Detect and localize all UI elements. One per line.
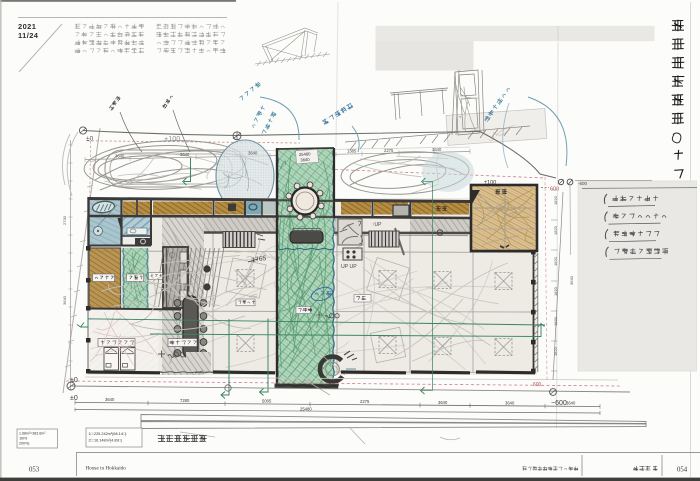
svg-text:7280: 7280 <box>180 398 190 403</box>
svg-text:1.68m²=383.6m²: 1.68m²=383.6m² <box>19 432 46 436</box>
svg-text:1385: 1385 <box>347 149 357 154</box>
svg-text:200%): 200%) <box>19 442 29 446</box>
svg-text:+100: +100 <box>164 134 180 143</box>
svg-text:UP UP: UP UP <box>341 264 357 270</box>
svg-text:25480: 25480 <box>300 407 312 412</box>
svg-text:1820: 1820 <box>553 256 558 266</box>
svg-text:3640: 3640 <box>569 275 574 285</box>
svg-text:2730: 2730 <box>62 215 67 225</box>
svg-text:1820: 1820 <box>553 286 558 296</box>
svg-text:3640: 3640 <box>105 397 115 402</box>
svg-text:5005: 5005 <box>262 398 272 403</box>
svg-text:↑UP: ↑UP <box>372 222 382 228</box>
svg-text:1820: 1820 <box>553 195 558 205</box>
svg-text:-600: -600 <box>578 181 588 186</box>
svg-text:3640: 3640 <box>300 157 310 163</box>
svg-text:1□:225.242m²(68.14□): 1□:225.242m²(68.14□) <box>89 432 128 436</box>
svg-text:3640: 3640 <box>505 400 515 405</box>
svg-text:3640: 3640 <box>432 147 442 152</box>
svg-text:±100: ±100 <box>484 180 496 186</box>
svg-text:053: 053 <box>29 467 40 474</box>
svg-text:2275: 2275 <box>360 399 370 404</box>
svg-text:3640: 3640 <box>566 401 576 406</box>
svg-text:054: 054 <box>677 467 688 474</box>
svg-text:1820: 1820 <box>553 225 558 235</box>
svg-text:House in Hokkaido: House in Hokkaido <box>86 466 127 472</box>
svg-text:2275: 2275 <box>384 148 394 153</box>
svg-text:±0: ±0 <box>70 395 78 402</box>
svg-text:±0: ±0 <box>70 377 78 384</box>
svg-text:3640: 3640 <box>180 152 190 157</box>
svg-text:1820: 1820 <box>553 346 558 356</box>
svg-text:1820: 1820 <box>553 316 558 326</box>
svg-text:3640: 3640 <box>248 151 258 156</box>
svg-text:3640: 3640 <box>62 295 67 305</box>
svg-text:3640: 3640 <box>115 153 125 158</box>
svg-text:±0: ±0 <box>86 136 94 143</box>
svg-text::60%: :60% <box>19 437 28 441</box>
svg-text:2□:16.148m²(4.89□): 2□:16.148m²(4.89□) <box>89 439 123 443</box>
svg-text:3640: 3640 <box>438 400 448 405</box>
